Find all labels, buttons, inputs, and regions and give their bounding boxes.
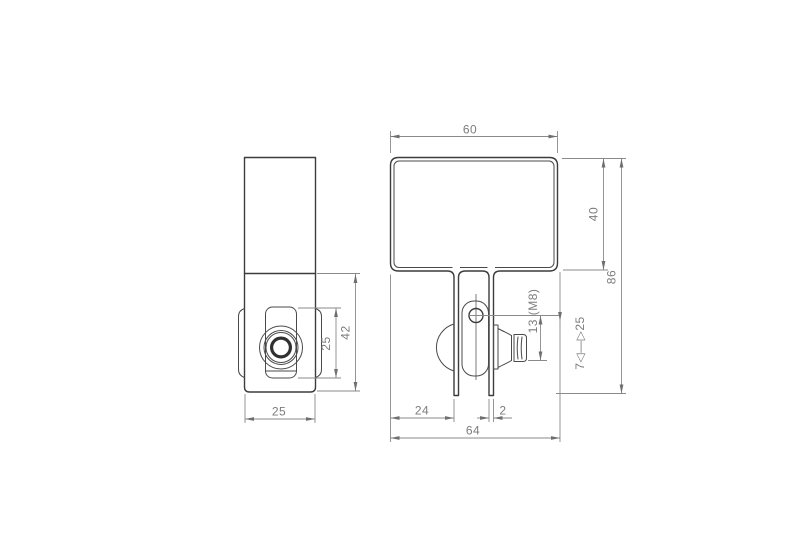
arrowhead bbox=[306, 417, 315, 421]
arrowhead bbox=[602, 261, 606, 270]
front-inner-contour bbox=[394, 161, 554, 268]
dim-side-lower-height: 42 bbox=[339, 325, 353, 339]
side-view bbox=[239, 158, 322, 393]
dim-front-adjust-range: 7◁—▷25 bbox=[573, 316, 587, 369]
drawing-canvas: 60 40 86 24 2 64 bbox=[0, 0, 800, 558]
front-body-outline bbox=[391, 158, 558, 396]
dim-front-leg-thickness: 2 bbox=[499, 404, 506, 418]
arrowhead bbox=[620, 385, 624, 394]
arrowhead bbox=[551, 436, 560, 440]
arrowhead bbox=[334, 369, 338, 378]
arrowhead bbox=[480, 416, 489, 420]
dim-front-overall-width: 64 bbox=[466, 424, 480, 438]
side-knob-circle-mid1 bbox=[264, 331, 298, 365]
arrowhead bbox=[391, 436, 400, 440]
arrowhead bbox=[391, 416, 400, 420]
arrowhead bbox=[549, 135, 558, 139]
side-pivot-plate bbox=[266, 307, 297, 378]
arrowhead bbox=[602, 159, 606, 168]
arrowhead bbox=[558, 312, 562, 321]
arrowhead bbox=[334, 308, 338, 317]
knob-cone bbox=[498, 329, 512, 368]
leg-gap-right bbox=[488, 265, 496, 270]
arrowhead bbox=[445, 416, 454, 420]
front-pivot-capsule bbox=[462, 301, 489, 376]
dim-front-hole-thread: 13 (M8) bbox=[526, 289, 540, 334]
dim-front-width: 60 bbox=[463, 123, 477, 137]
dimensions: 60 40 86 24 2 64 bbox=[245, 123, 626, 443]
technical-drawing-page: 60 40 86 24 2 64 bbox=[0, 0, 800, 558]
arrowhead bbox=[354, 382, 358, 391]
arrowhead bbox=[539, 352, 543, 361]
side-left-tab bbox=[239, 309, 245, 378]
knob-tip bbox=[514, 335, 527, 362]
side-knob-socket-ring bbox=[272, 338, 291, 357]
leg-gap-left bbox=[453, 265, 461, 270]
dim-side-depth: 25 bbox=[272, 405, 286, 419]
arrowhead bbox=[245, 417, 254, 421]
dim-front-leg-offset: 24 bbox=[415, 404, 429, 418]
dim-front-total-height: 86 bbox=[605, 270, 619, 284]
arrowhead bbox=[354, 274, 358, 283]
clamp-pad-arc bbox=[436, 324, 454, 371]
arrowhead bbox=[620, 159, 624, 168]
knob-grip-grooves bbox=[517, 337, 522, 359]
front-view bbox=[391, 158, 558, 396]
dim-front-upper-height: 40 bbox=[587, 207, 601, 221]
dim-side-pivot-height: 25 bbox=[319, 336, 333, 350]
arrowhead bbox=[391, 135, 400, 139]
